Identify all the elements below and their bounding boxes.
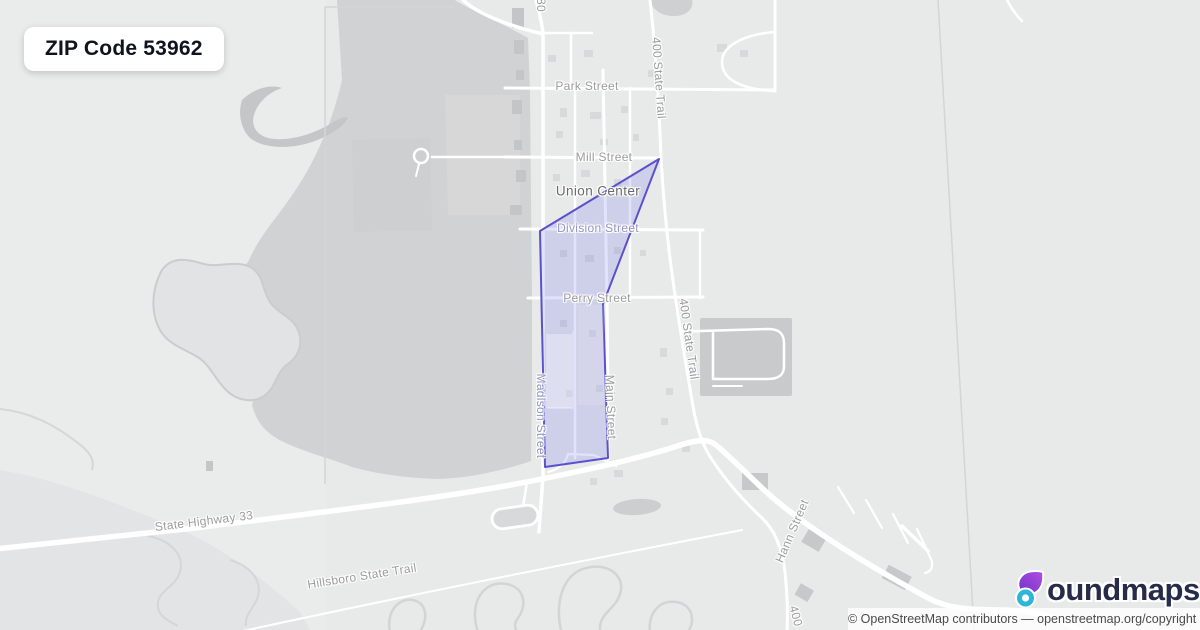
boundmaps-drop-icon — [1014, 569, 1046, 609]
boundmaps-logo: oundmaps — [1014, 566, 1200, 610]
attribution-text: © OpenStreetMap contributors — openstree… — [848, 612, 1196, 626]
map-canvas — [0, 0, 1200, 630]
zip-code-badge: ZIP Code 53962 — [24, 27, 224, 71]
park-street-road — [505, 88, 775, 90]
boundmaps-logo-text: oundmaps — [1047, 570, 1200, 610]
map-card: 80Park StreetMill StreetUnion CenterDivi… — [0, 0, 1200, 630]
mill-street-road — [505, 157, 659, 158]
map-attribution: © OpenStreetMap contributors — openstree… — [848, 608, 1200, 630]
zip-code-text: ZIP Code 53962 — [45, 37, 203, 60]
